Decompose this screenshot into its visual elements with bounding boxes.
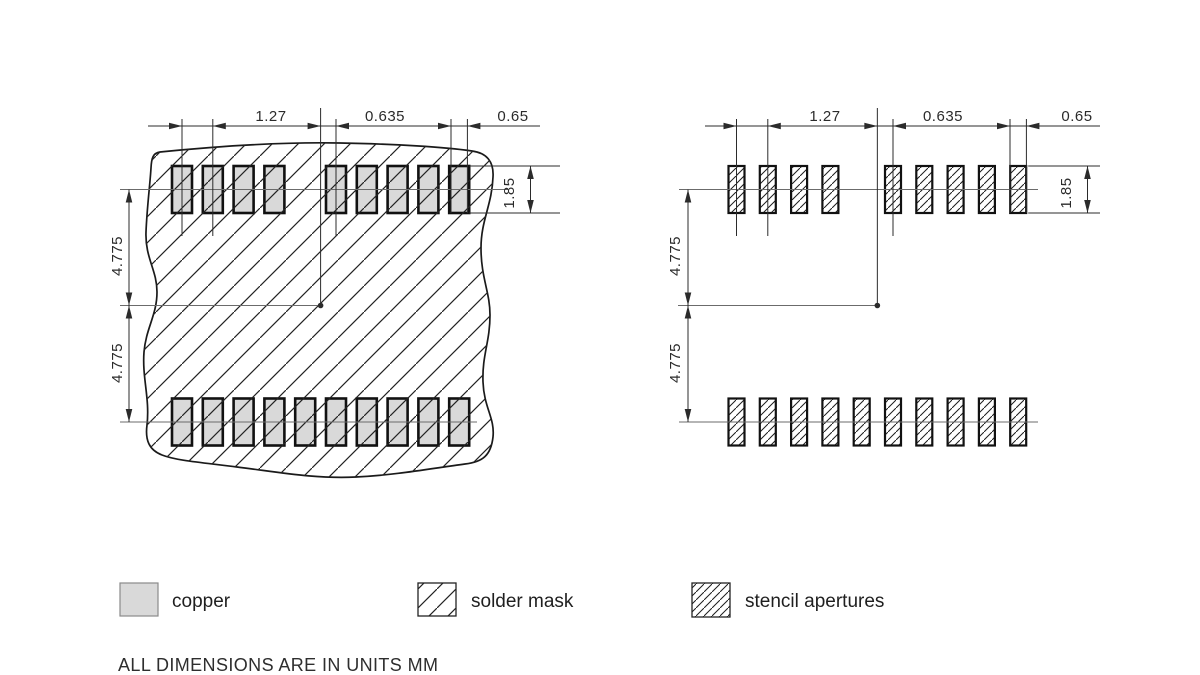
dim-arrow xyxy=(467,123,480,130)
view-stencil-apertures: 1.27 0.635 0.65 1.85 4.775 4.775 xyxy=(667,108,1100,446)
dim-arrow xyxy=(126,409,133,422)
dim-arrow xyxy=(685,306,692,319)
view-copper-solder-mask: 1.27 0.635 0.65 1.85 4.775 4.775 xyxy=(109,108,560,477)
dim-arrow xyxy=(126,190,133,203)
dim-label-pitch-left: 1.27 xyxy=(255,108,286,125)
units-note: ALL DIMENSIONS ARE IN UNITS MM xyxy=(118,655,438,675)
legend-label-copper: copper xyxy=(172,591,231,612)
legend-item-stencil-apertures: stencil apertures xyxy=(692,583,884,617)
dim-arrow xyxy=(126,306,133,319)
dim-arrow xyxy=(724,123,737,130)
footprint-drawing: 1.27 0.635 0.65 1.85 4.775 4.775 1.27 0.… xyxy=(0,0,1200,675)
dim-label-pitch-right: 1.27 xyxy=(809,108,840,125)
dim-label-half-pitch-left: 0.635 xyxy=(365,108,405,125)
dim-label-pad-width-left: 0.65 xyxy=(497,108,528,125)
dim-arrow xyxy=(438,123,451,130)
legend-label-solder-mask: solder mask xyxy=(471,591,574,612)
footprint-drawing-page: 1.27 0.635 0.65 1.85 4.775 4.775 1.27 0.… xyxy=(0,0,1200,675)
legend-label-stencil-apertures: stencil apertures xyxy=(745,591,884,612)
dim-arrow xyxy=(1084,166,1091,179)
dim-label-pad-width-right: 0.65 xyxy=(1061,108,1092,125)
legend: copper solder mask stencil apertures xyxy=(120,583,884,617)
dim-arrow xyxy=(169,123,182,130)
dimension-lines-right xyxy=(678,108,1100,422)
dim-label-lower-offset-left: 4.775 xyxy=(109,343,126,383)
dim-arrow xyxy=(893,123,906,130)
dim-arrow xyxy=(997,123,1010,130)
dim-arrow xyxy=(1026,123,1039,130)
dim-label-pad-height-right: 1.85 xyxy=(1058,177,1075,208)
dim-arrow xyxy=(527,200,534,213)
dim-arrow xyxy=(864,123,877,130)
dim-arrow xyxy=(685,293,692,306)
dim-arrow xyxy=(527,166,534,179)
dim-label-upper-offset-left: 4.775 xyxy=(109,236,126,276)
dim-label-half-pitch-right: 0.635 xyxy=(923,108,963,125)
dim-label-lower-offset-right: 4.775 xyxy=(667,343,684,383)
dim-label-pad-height-left: 1.85 xyxy=(501,177,518,208)
dim-arrow xyxy=(126,293,133,306)
solder-mask-swatch xyxy=(418,583,456,616)
dim-arrow xyxy=(213,123,226,130)
stencil-apertures-swatch xyxy=(692,583,730,617)
dim-label-upper-offset-right: 4.775 xyxy=(667,236,684,276)
dim-arrow xyxy=(308,123,321,130)
dim-arrow xyxy=(685,190,692,203)
dim-arrow xyxy=(336,123,349,130)
dim-arrow xyxy=(685,409,692,422)
legend-item-copper: copper xyxy=(120,583,231,616)
dim-arrow xyxy=(768,123,781,130)
solder-mask-hatch xyxy=(144,143,494,478)
copper-swatch xyxy=(120,583,158,616)
legend-item-solder-mask: solder mask xyxy=(418,583,574,616)
dim-arrow xyxy=(1084,200,1091,213)
